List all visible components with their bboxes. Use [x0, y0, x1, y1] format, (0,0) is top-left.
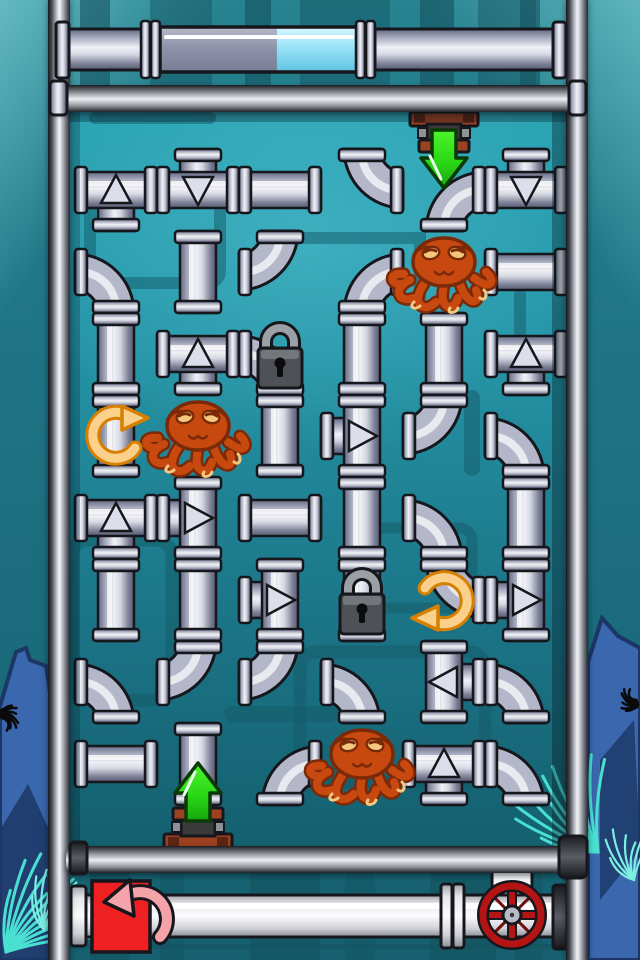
frame-joints: [50, 81, 587, 878]
timer-water-fill: [277, 27, 358, 72]
game-stage: [0, 0, 640, 960]
timer-elapsed-fill: [160, 27, 277, 72]
hardware-layer: [0, 0, 640, 960]
water-timer-pipe: [56, 21, 566, 78]
